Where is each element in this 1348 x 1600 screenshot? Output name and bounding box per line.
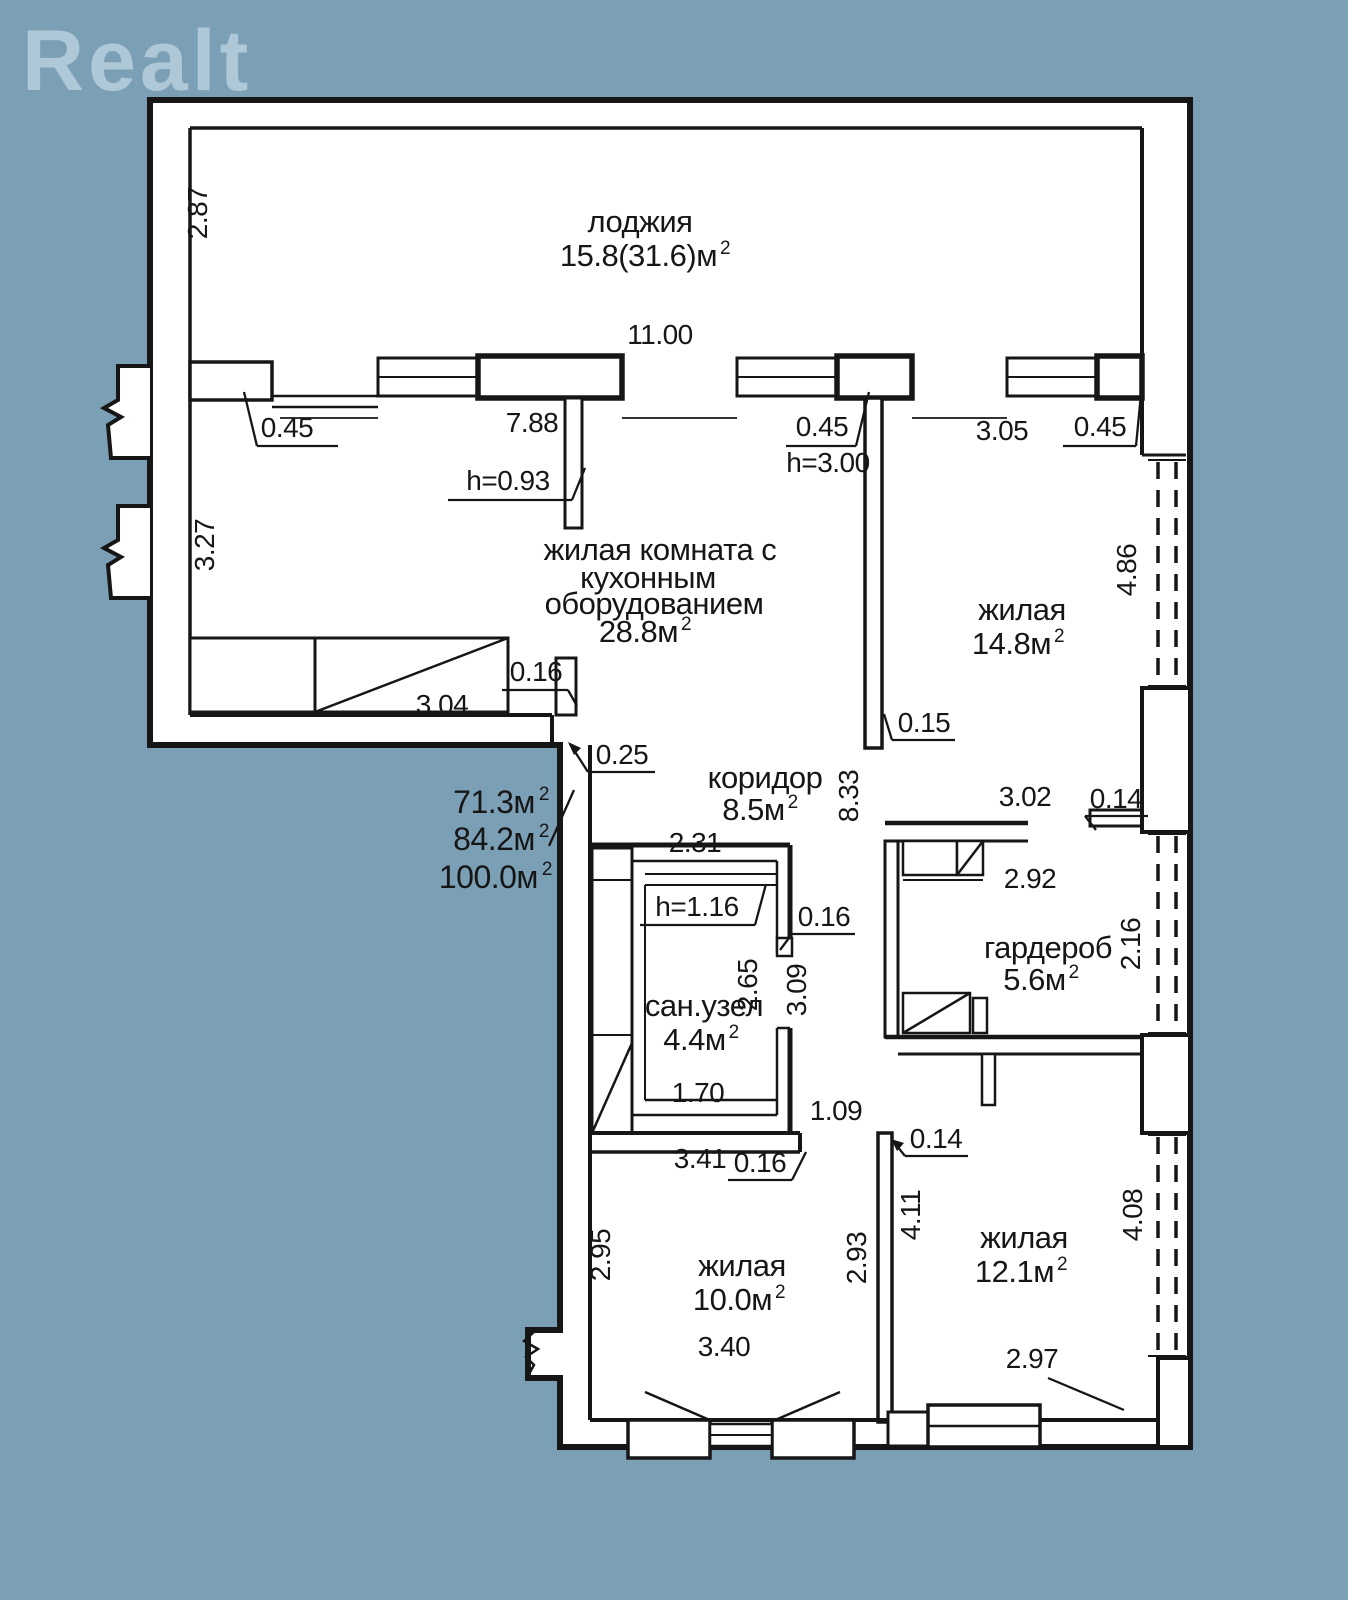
dimension-label: 0.45 xyxy=(261,412,314,443)
room-label-corridor: коридор xyxy=(708,760,823,795)
dimension-label: 3.05 xyxy=(976,415,1029,446)
room-label-living10: жилая xyxy=(698,1248,786,1283)
realt-logo: Realt xyxy=(22,13,252,109)
floor-plan: Realt xyxy=(0,0,1348,1600)
dimension-label: 0.15 xyxy=(898,707,951,738)
dimension-label: 0.16 xyxy=(734,1147,787,1178)
dimension-label: 0.14 xyxy=(910,1123,963,1154)
total-area-2: 84.2м2 xyxy=(453,821,549,857)
room-area-living14: 14.8м2 xyxy=(972,626,1064,661)
dimension-label: 2.97 xyxy=(1006,1343,1059,1374)
dimension-label: 1.09 xyxy=(810,1095,863,1126)
dimension-label: 3.41 xyxy=(674,1143,727,1174)
room-area-living-kitchen: 28.8м2 xyxy=(599,614,691,649)
dimension-label: h=3.00 xyxy=(786,447,869,478)
dimension-label: h=1.16 xyxy=(655,891,738,922)
room-label-living12: жилая xyxy=(980,1220,1068,1255)
dimension-label: 0.25 xyxy=(596,739,649,770)
dimension-label: 7.88 xyxy=(506,407,559,438)
dimension-label: 3.09 xyxy=(781,964,812,1017)
dimension-label: 4.11 xyxy=(895,1190,926,1240)
room-label-living14: жилая xyxy=(978,592,1066,627)
room-label-wardrobe: гардероб xyxy=(984,930,1112,965)
dimension-label: 3.04 xyxy=(416,689,469,720)
dimension-label: 8.33 xyxy=(833,770,864,823)
dimension-label: 2.92 xyxy=(1004,863,1057,894)
dimension-label: 11.00 xyxy=(627,319,693,350)
balcony-door xyxy=(888,1412,928,1446)
dimension-label: 0.14 xyxy=(1090,783,1143,814)
dimension-label: 1.70 xyxy=(672,1077,725,1108)
dimension-label: 0.16 xyxy=(798,901,851,932)
wardrobe-cabinet xyxy=(903,841,957,875)
dimension-label: 2.65 xyxy=(732,959,763,1012)
dimension-label: 2.31 xyxy=(669,827,722,858)
dimension-label: 2.87 xyxy=(182,187,213,240)
dimension-label: 0.45 xyxy=(796,411,849,442)
dimension-label: 3.40 xyxy=(698,1331,751,1362)
dimension-label: 4.86 xyxy=(1111,544,1142,597)
dimension-label: 2.93 xyxy=(841,1232,872,1285)
dimension-label: 0.45 xyxy=(1074,411,1127,442)
dimension-label: 3.02 xyxy=(999,781,1052,812)
total-area-1: 71.3м2 xyxy=(453,784,549,820)
dimension-label: 2.16 xyxy=(1115,918,1146,971)
room-area-living10: 10.0м2 xyxy=(693,1282,785,1317)
dimension-label: 4.08 xyxy=(1117,1189,1148,1242)
room-area-loggia: 15.8(31.6)м2 xyxy=(560,238,730,273)
room-area-living12: 12.1м2 xyxy=(975,1254,1067,1289)
room-label-loggia: лоджия xyxy=(588,204,693,239)
closet xyxy=(190,638,315,712)
dimension-label: h=0.93 xyxy=(466,465,549,496)
dimension-label: 2.95 xyxy=(585,1229,616,1282)
window-reveal xyxy=(628,1420,710,1458)
total-area-3: 100.0м2 xyxy=(439,859,552,895)
dimension-label: 3.27 xyxy=(189,519,220,572)
dimension-label: 0.16 xyxy=(510,656,563,687)
